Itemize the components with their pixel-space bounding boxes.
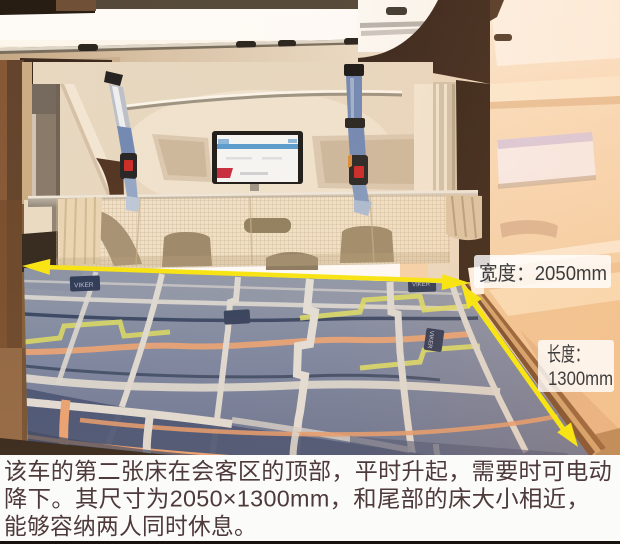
svg-text:降下。其尺寸为2050×1300mm，和尾部的床大小相近，: 降下。其尺寸为2050×1300mm，和尾部的床大小相近， (4, 486, 590, 512)
svg-text:长度：: 长度： (547, 343, 589, 366)
svg-text:宽度：2050mm: 宽度：2050mm (479, 262, 607, 285)
svg-text:能够容纳两人同时休息。: 能够容纳两人同时休息。 (4, 513, 257, 539)
svg-text:1300mm: 1300mm (548, 369, 613, 390)
svg-text:该车的第二张床在会客区的顶部，平时升起，需要时可电动: 该车的第二张床在会客区的顶部，平时升起，需要时可电动 (4, 458, 612, 484)
